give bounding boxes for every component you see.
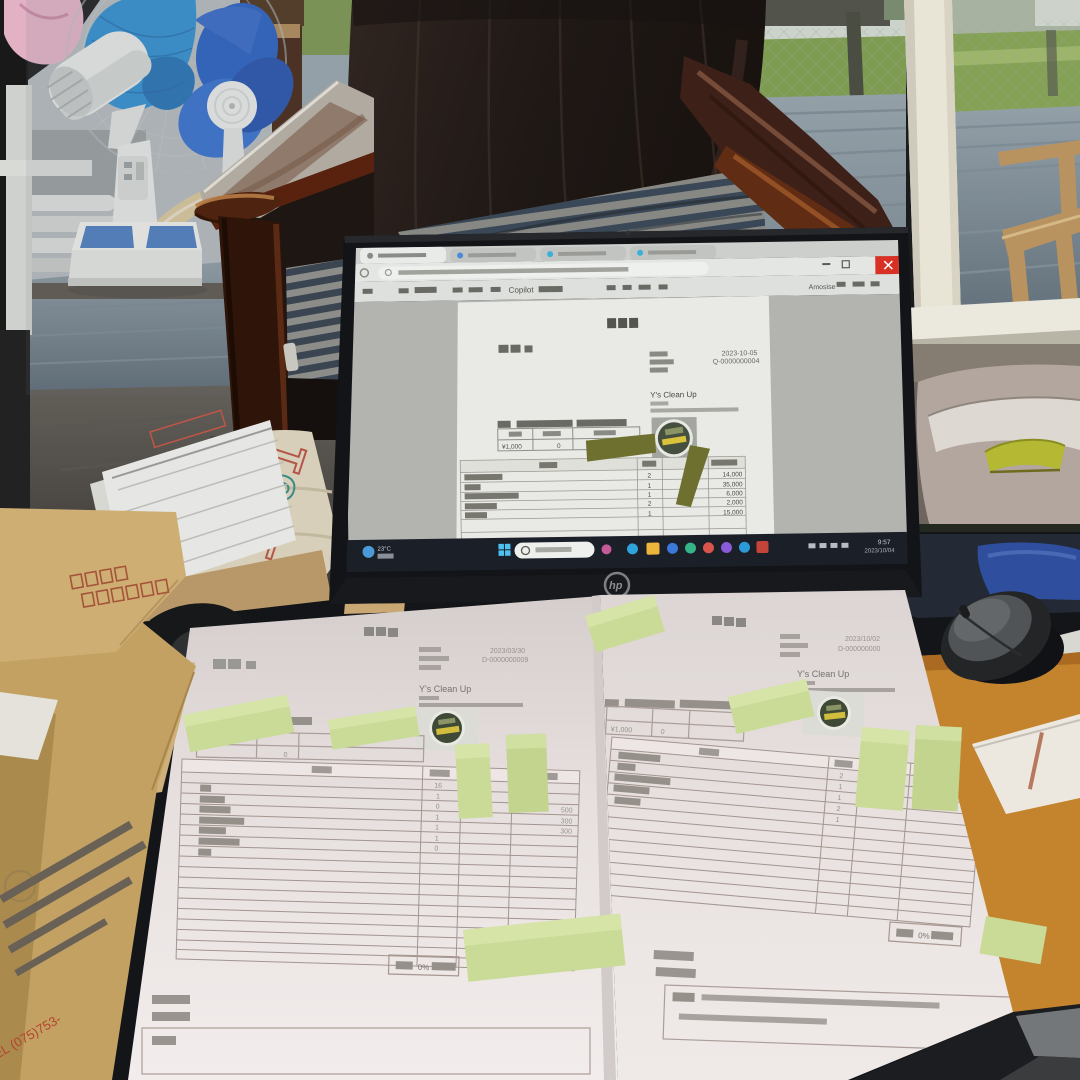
svg-text:0%: 0% xyxy=(418,963,430,972)
svg-text:300: 300 xyxy=(561,818,573,825)
svg-text:1: 1 xyxy=(435,815,439,822)
svg-text:2: 2 xyxy=(836,806,841,813)
svg-text:15,000: 15,000 xyxy=(723,509,743,516)
svg-text:300: 300 xyxy=(560,828,572,835)
svg-text:2: 2 xyxy=(647,473,651,480)
svg-text:16: 16 xyxy=(434,782,442,789)
svg-text:1: 1 xyxy=(648,492,652,499)
svg-text:¥1,000: ¥1,000 xyxy=(611,726,633,734)
svg-text:2: 2 xyxy=(648,501,652,508)
svg-text:0%: 0% xyxy=(918,931,930,941)
svg-text:23°C: 23°C xyxy=(377,547,391,553)
svg-text:2023/03/30: 2023/03/30 xyxy=(490,648,525,655)
svg-text:2: 2 xyxy=(839,773,844,780)
svg-text:Y's Clean Up: Y's Clean Up xyxy=(797,669,849,679)
svg-text:0: 0 xyxy=(661,729,665,736)
svg-text:1: 1 xyxy=(838,784,843,791)
svg-text:2,000: 2,000 xyxy=(726,499,743,506)
svg-text:1: 1 xyxy=(835,817,840,824)
svg-text:6,000: 6,000 xyxy=(726,490,743,497)
svg-text:0: 0 xyxy=(436,804,440,811)
svg-text:1: 1 xyxy=(648,511,652,518)
svg-text:1: 1 xyxy=(436,794,440,801)
svg-text:500: 500 xyxy=(561,807,573,814)
svg-text:2023-10-05: 2023-10-05 xyxy=(722,350,758,358)
svg-text:¥1,000: ¥1,000 xyxy=(502,444,522,451)
svg-text:D-0000000009: D-0000000009 xyxy=(482,657,528,664)
svg-text:1: 1 xyxy=(435,836,439,843)
svg-text:D-000000000: D-000000000 xyxy=(838,646,881,653)
svg-text:14,000: 14,000 xyxy=(722,471,742,478)
svg-text:hp: hp xyxy=(609,580,623,592)
svg-text:0: 0 xyxy=(434,846,438,853)
svg-text:2023/10/04: 2023/10/04 xyxy=(864,548,895,554)
svg-text:Q-0000000004: Q-0000000004 xyxy=(713,358,760,366)
svg-text:35,000: 35,000 xyxy=(723,481,743,488)
svg-text:0: 0 xyxy=(557,443,561,450)
svg-text:Y's Clean Up: Y's Clean Up xyxy=(650,390,697,400)
svg-text:Y's Clean Up: Y's Clean Up xyxy=(419,684,471,694)
svg-text:0: 0 xyxy=(283,752,287,759)
svg-text:1: 1 xyxy=(648,483,652,490)
svg-text:2023/10/02: 2023/10/02 xyxy=(845,636,880,643)
svg-text:9:57: 9:57 xyxy=(878,539,891,546)
svg-text:1: 1 xyxy=(837,795,842,802)
svg-text:1: 1 xyxy=(435,825,439,832)
svg-text:Amosise: Amosise xyxy=(809,284,836,291)
svg-text:Copilot: Copilot xyxy=(509,285,535,294)
